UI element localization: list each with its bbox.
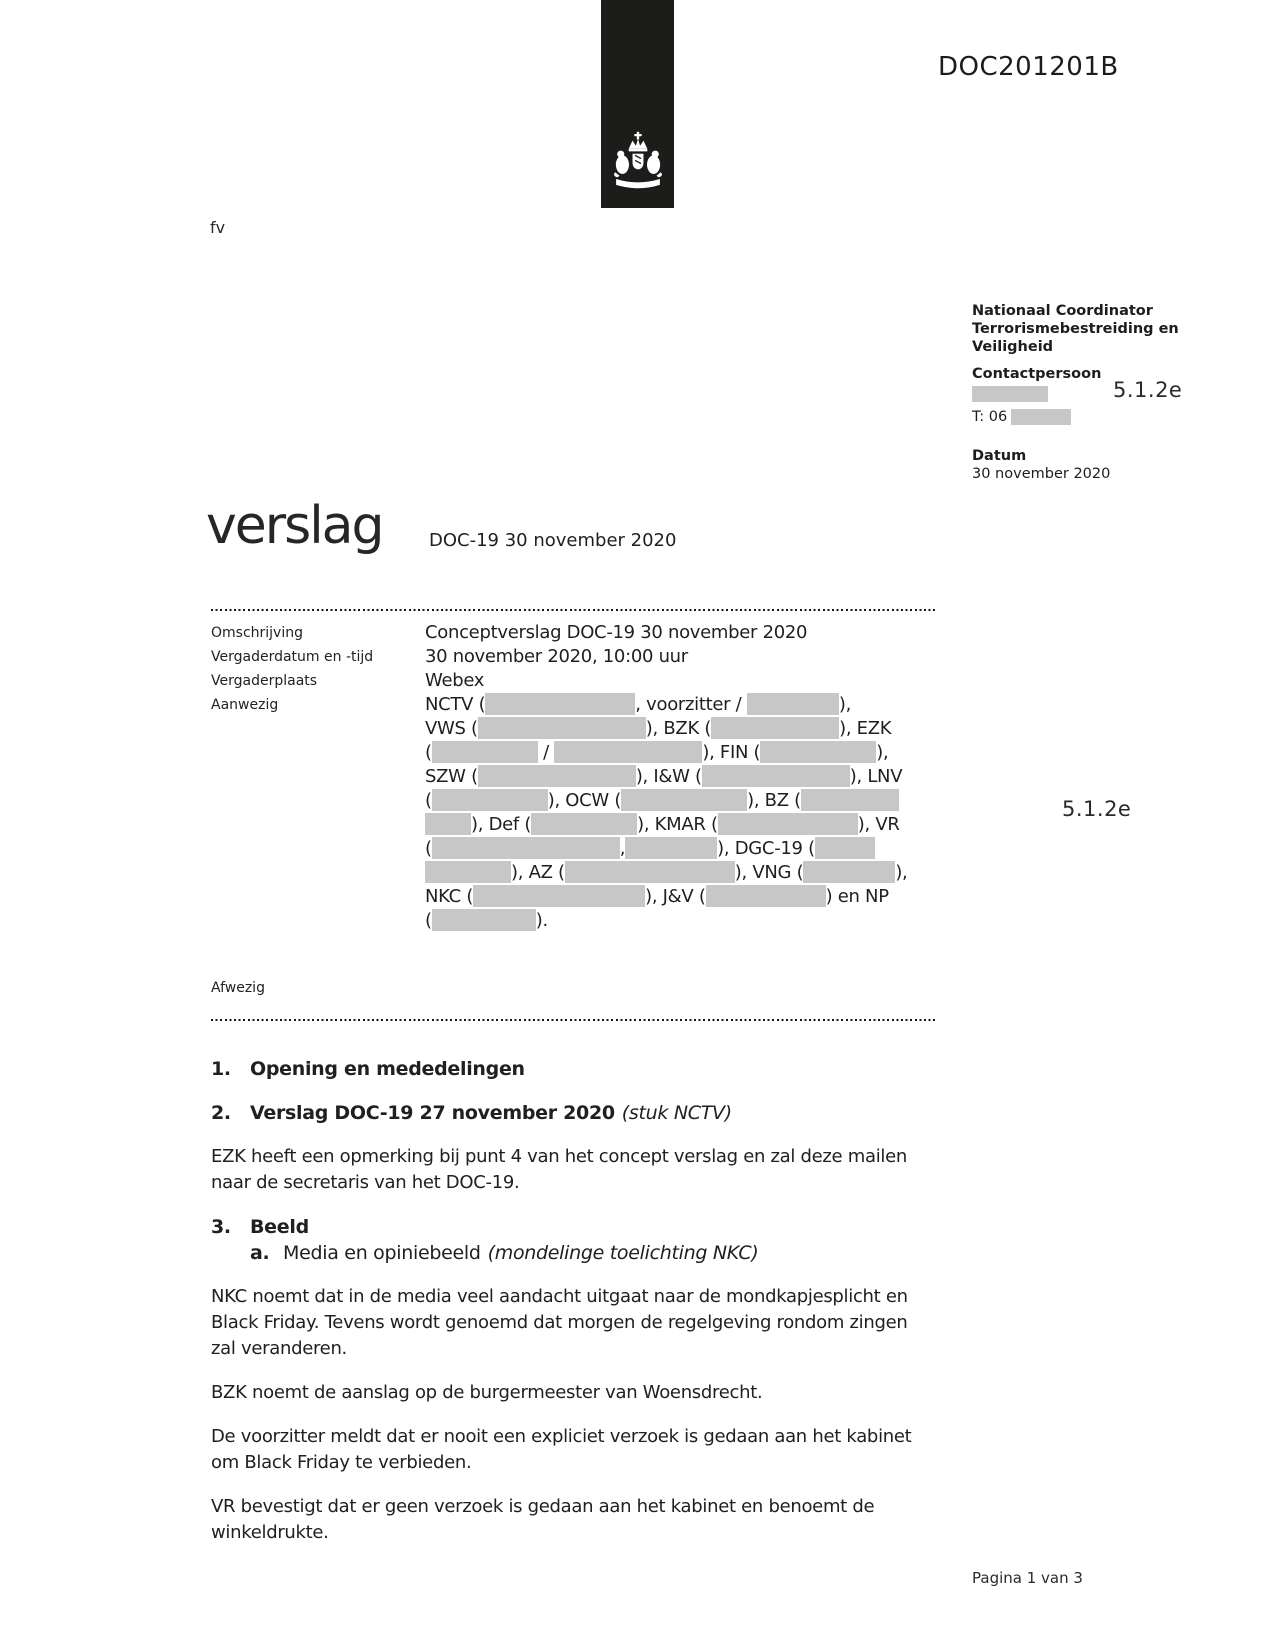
attendee-line: ), AZ (), VNG (), (425, 861, 907, 885)
attendee-text: ), (839, 694, 851, 715)
redaction-code-attendees: 5.1.2e (1062, 797, 1131, 821)
attendee-text: ), (876, 742, 888, 763)
redaction-box (702, 765, 850, 787)
meta-row-aanwezig: Aanwezig NCTV (, voorzitter / ),VWS (), … (211, 693, 971, 933)
attendee-text: ), VNG ( (735, 862, 804, 883)
attendee-text: ). (536, 910, 548, 931)
redaction-box (711, 717, 839, 739)
typist-initials: fv (210, 218, 225, 237)
document-id: DOC201201B (938, 52, 1119, 82)
attendee-text: ), J&V ( (645, 886, 705, 907)
section-subitem: a.Media en opiniebeeld(mondelinge toelic… (250, 1240, 981, 1266)
section-heading: 1.Opening en mededelingen (211, 1056, 981, 1082)
section-title: Beeld (250, 1214, 309, 1240)
vergaderdatum-label: Vergaderdatum en -tijd (211, 645, 425, 669)
attendee-line: (), OCW (), BZ ( (425, 789, 907, 813)
rijksoverheid-banner (601, 0, 674, 208)
redacted-phone-number (1011, 409, 1071, 425)
redaction-box (801, 789, 899, 811)
section-number: 2. (211, 1100, 250, 1126)
redaction-box (425, 861, 511, 883)
redaction-box (760, 741, 876, 763)
attendee-line: (,), DGC-19 ( (425, 837, 907, 861)
redaction-box (478, 765, 636, 787)
attendee-text: ( (425, 790, 432, 811)
attendee-line: ), Def (), KMAR (), VR (425, 813, 907, 837)
redaction-box (531, 813, 637, 835)
afwezig-label: Afwezig (211, 980, 265, 996)
paragraph: NKC noemt dat in de media veel aandacht … (211, 1284, 981, 1362)
section-number: 1. (211, 1056, 250, 1082)
minutes-body: 1.Opening en mededelingen2.Verslag DOC-1… (211, 1056, 981, 1546)
vergaderdatum-value: 30 november 2020, 10:00 uur (425, 645, 688, 669)
attendee-text: SZW ( (425, 766, 478, 787)
attendee-line: (). (425, 909, 907, 933)
redacted-contact-name (972, 386, 1048, 402)
redaction-box (432, 741, 538, 763)
meta-row-vergaderdatum: Vergaderdatum en -tijd 30 november 2020,… (211, 645, 971, 669)
attendee-text: ), KMAR ( (637, 814, 718, 835)
attendee-text: NCTV ( (425, 694, 485, 715)
section-heading: 2.Verslag DOC-19 27 november 2020(stuk N… (211, 1100, 981, 1126)
section-number: a. (250, 1240, 283, 1266)
datum-value: 30 november 2020 (972, 465, 1192, 483)
attendee-text: ( (425, 910, 432, 931)
attendee-line: SZW (), I&W (), LNV (425, 765, 907, 789)
meta-row-omschrijving: Omschrijving Conceptverslag DOC-19 30 no… (211, 621, 971, 645)
redaction-box (485, 693, 635, 715)
document-page: DOC201201B fv Nationaal Coordinator Terr… (0, 0, 1275, 1650)
rijksoverheid-emblem-icon (609, 131, 667, 195)
attendee-text: ), BZ ( (747, 790, 801, 811)
attendee-text: VWS ( (425, 718, 478, 739)
aanwezig-value: NCTV (, voorzitter / ),VWS (), BZK (), E… (425, 693, 907, 933)
attendee-text: ), OCW ( (548, 790, 621, 811)
section-title: Media en opiniebeeld (283, 1240, 481, 1266)
redaction-box (473, 885, 645, 907)
redaction-box (432, 909, 536, 931)
redaction-box (718, 813, 858, 835)
omschrijving-label: Omschrijving (211, 621, 425, 645)
attendee-line: ( / ), FIN (), (425, 741, 907, 765)
page-number: Pagina 1 van 3 (972, 1569, 1083, 1587)
attendee-text: ), (895, 862, 907, 883)
redaction-box (425, 813, 471, 835)
vergaderplaats-label: Vergaderplaats (211, 669, 425, 693)
section-title: Verslag DOC-19 27 november 2020 (250, 1100, 615, 1126)
meta-table: Omschrijving Conceptverslag DOC-19 30 no… (211, 621, 971, 933)
redaction-box (815, 837, 875, 859)
attendee-text: ), Def ( (471, 814, 531, 835)
attendee-text: ), VR (858, 814, 900, 835)
attendee-line: NKC (), J&V () en NP (425, 885, 907, 909)
redaction-box (432, 837, 620, 859)
attendee-text: ), LNV (850, 766, 902, 787)
section-title: Opening en mededelingen (250, 1056, 525, 1082)
datum-label: Datum (972, 447, 1192, 465)
meta-row-vergaderplaats: Vergaderplaats Webex (211, 669, 971, 693)
phone-prefix: T: 06 (972, 409, 1007, 425)
omschrijving-value: Conceptverslag DOC-19 30 november 2020 (425, 621, 807, 645)
paragraph: BZK noemt de aanslag op de burgermeester… (211, 1380, 981, 1406)
attendee-text: ( (425, 838, 432, 859)
attendee-text: ), EZK (839, 718, 891, 739)
redaction-box (432, 789, 548, 811)
attendee-text: ( (425, 742, 432, 763)
separator-bottom (211, 1019, 935, 1021)
paragraph: EZK heeft een opmerking bij punt 4 van h… (211, 1144, 981, 1196)
attendee-text: ), BZK ( (646, 718, 711, 739)
redaction-box (706, 885, 826, 907)
attendee-text: ), FIN ( (702, 742, 760, 763)
separator-top (211, 609, 935, 611)
attendee-text: ) en NP (826, 886, 889, 907)
paragraph: VR bevestigt dat er geen verzoek is geda… (211, 1494, 981, 1546)
document-subtitle: DOC-19 30 november 2020 (429, 530, 676, 551)
attendee-text: ), I&W ( (636, 766, 702, 787)
document-type-title: verslag (206, 498, 383, 554)
attendee-line: NCTV (, voorzitter / ), (425, 693, 907, 717)
redaction-box (747, 693, 839, 715)
datum-block: Datum 30 november 2020 (972, 447, 1192, 483)
redaction-box (625, 837, 717, 859)
section-number: 3. (211, 1214, 250, 1240)
section-title-annotation: (mondelinge toelichting NKC) (488, 1240, 759, 1266)
redaction-box (803, 861, 895, 883)
attendee-text: ), DGC-19 ( (717, 838, 815, 859)
attendee-text: / (538, 742, 555, 763)
contact-phone: T: 06 (972, 408, 1192, 426)
redaction-box (554, 741, 702, 763)
attendee-text: NKC ( (425, 886, 473, 907)
redaction-box (478, 717, 646, 739)
redaction-code-contact: 5.1.2e (1113, 378, 1182, 402)
attendee-text: , voorzitter / (635, 694, 747, 715)
redaction-box (621, 789, 747, 811)
vergaderplaats-value: Webex (425, 669, 484, 693)
section-heading: 3.Beeld (211, 1214, 981, 1240)
org-name: Nationaal Coordinator Terrorismebestreid… (972, 302, 1192, 356)
attendee-line: VWS (), BZK (), EZK (425, 717, 907, 741)
redaction-box (565, 861, 735, 883)
attendee-text: ), AZ ( (511, 862, 565, 883)
aanwezig-label: Aanwezig (211, 693, 425, 717)
paragraph: De voorzitter meldt dat er nooit een exp… (211, 1424, 981, 1476)
section-title-annotation: (stuk NCTV) (622, 1100, 732, 1126)
